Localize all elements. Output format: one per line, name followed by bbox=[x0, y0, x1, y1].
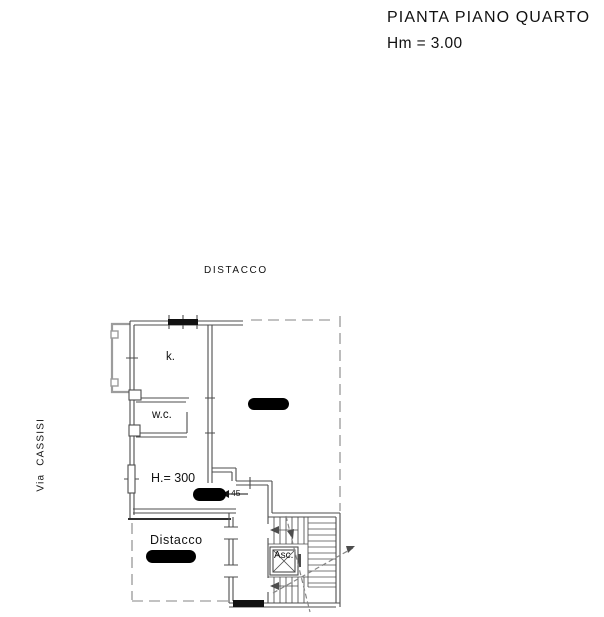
arrow-left-upper bbox=[270, 526, 279, 534]
redacted-text bbox=[146, 550, 196, 563]
arrow-diagonal-down bbox=[287, 529, 294, 539]
arrow-left-lower bbox=[270, 582, 279, 590]
door-width-label: 45 bbox=[231, 489, 240, 499]
setback-label-top: DISTACCO bbox=[204, 265, 268, 277]
plan-title: PIANTA PIANO QUARTO bbox=[387, 9, 590, 27]
plan-height-note: Hm = 3.00 bbox=[387, 35, 463, 53]
wc-label: w.c. bbox=[152, 409, 172, 422]
wall-pier bbox=[129, 390, 141, 400]
wall-pier bbox=[129, 425, 140, 436]
arrow-diagonal-up bbox=[346, 546, 355, 553]
stair-direction-arrows bbox=[270, 516, 355, 612]
kitchen-label: k. bbox=[166, 351, 175, 364]
window-top bbox=[168, 319, 198, 325]
redacted-text bbox=[193, 488, 226, 501]
window-left bbox=[128, 465, 135, 493]
window-bottom bbox=[233, 600, 264, 607]
elevator-label: Asc. bbox=[274, 550, 293, 562]
redacted-text bbox=[248, 398, 289, 410]
floorplan-canvas: PIANTA PIANO QUARTO Hm = 3.00 DISTACCO V… bbox=[0, 0, 604, 617]
floor-plan-drawing bbox=[0, 0, 604, 617]
street-label: Via CASSISI bbox=[35, 390, 47, 520]
apartment-walls bbox=[130, 321, 340, 607]
setback-label-bottom: Distacco bbox=[150, 533, 203, 547]
ceiling-height-label: H.= 300 bbox=[151, 471, 195, 485]
